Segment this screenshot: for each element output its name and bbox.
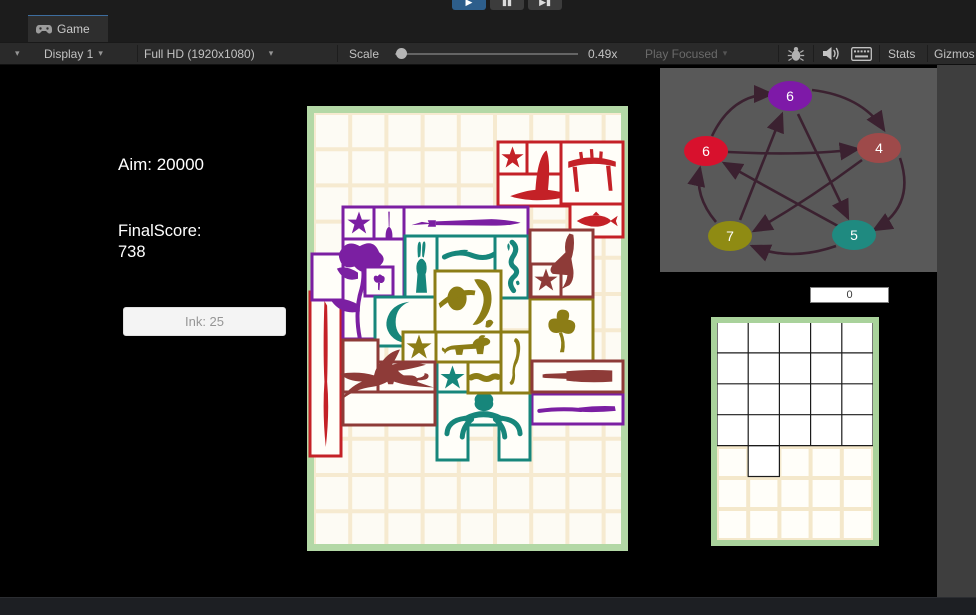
puzzle-piece[interactable] xyxy=(343,207,374,240)
bug-icon xyxy=(787,46,805,62)
graph-node-label: 6 xyxy=(786,88,794,104)
graph-node[interactable]: 6 xyxy=(684,136,728,166)
mute-audio-button[interactable] xyxy=(822,43,842,64)
puzzle-piece[interactable] xyxy=(403,332,501,362)
puzzle-piece[interactable] xyxy=(310,292,341,456)
display-selector[interactable]: Display 1▾ xyxy=(44,43,103,64)
graph-node-label: 7 xyxy=(726,228,734,244)
graph-node-label: 6 xyxy=(702,143,710,159)
graph-node[interactable]: 4 xyxy=(857,133,901,163)
scale-value: 0.49x xyxy=(588,43,617,64)
graph-edge-arrow xyxy=(712,94,772,136)
graph-node-label: 4 xyxy=(875,140,883,156)
graph-edge-arrow xyxy=(754,160,862,231)
final-score-text: FinalScore: 738 xyxy=(118,221,238,263)
scale-slider[interactable] xyxy=(395,53,578,55)
toolbar-separator xyxy=(927,45,928,62)
tab-game-label: Game xyxy=(57,22,90,36)
graph-edge-arrow xyxy=(812,90,884,130)
graph-edge-arrow xyxy=(728,149,858,153)
view-options-caret[interactable]: ▾ xyxy=(10,43,20,64)
display-selector-label: Display 1 xyxy=(44,47,93,61)
puzzle-piece[interactable] xyxy=(365,267,393,296)
resolution-selector[interactable]: Full HD (1920x1080) ▾ xyxy=(144,43,273,64)
puzzle-piece[interactable] xyxy=(530,299,593,362)
graph-edge-arrow xyxy=(752,246,836,254)
gizmos-label: Gizmos xyxy=(934,47,975,61)
graph-edge-arrow xyxy=(874,158,904,230)
editor-tab-strip: ▶ ▮▮ ▶▮ Game xyxy=(0,0,976,42)
node-graph-panel: 66475 xyxy=(660,68,937,272)
number-input[interactable] xyxy=(810,287,889,303)
toolbar-separator xyxy=(813,45,814,62)
debug-button[interactable] xyxy=(787,43,805,64)
pause-button[interactable]: ▮▮ xyxy=(490,0,524,10)
puzzle-piece[interactable] xyxy=(561,142,623,204)
node-graph: 66475 xyxy=(660,68,937,272)
puzzle-piece[interactable] xyxy=(468,362,501,393)
aim-score-text: Aim: 20000 xyxy=(118,155,204,175)
puzzle-piece[interactable] xyxy=(437,362,468,393)
speaker-icon xyxy=(822,46,842,61)
play-focused-selector[interactable]: Play Focused ▾ xyxy=(645,43,727,64)
keyboard-icon xyxy=(851,47,872,61)
puzzle-piece[interactable] xyxy=(532,394,623,424)
puzzle-piece[interactable] xyxy=(405,236,437,298)
graph-edge-arrow xyxy=(798,114,848,218)
ink-button[interactable]: Ink: 25 xyxy=(123,307,286,336)
play-button[interactable]: ▶ xyxy=(452,0,486,10)
puzzle-piece[interactable] xyxy=(501,332,530,393)
graph-edge-arrow xyxy=(740,114,782,220)
game-view-toolbar: ▾ Display 1▾ Full HD (1920x1080) ▾ Scale… xyxy=(0,42,976,65)
resolution-selector-label: Full HD (1920x1080) xyxy=(144,47,255,61)
scale-slider-knob[interactable] xyxy=(396,48,407,59)
graph-node-label: 5 xyxy=(850,227,858,243)
graph-node[interactable]: 5 xyxy=(832,220,876,250)
play-focused-label: Play Focused xyxy=(645,47,718,61)
toolbar-separator xyxy=(137,45,138,62)
graph-edge-arrow xyxy=(699,168,716,222)
step-button[interactable]: ▶▮ xyxy=(528,0,562,10)
graph-node[interactable]: 7 xyxy=(708,221,752,251)
stats-button[interactable]: Stats xyxy=(888,43,915,64)
puzzle-piece[interactable] xyxy=(530,230,593,297)
toolbar-separator xyxy=(337,45,338,62)
play-controls: ▶ ▮▮ ▶▮ xyxy=(452,0,562,10)
main-puzzle-board[interactable] xyxy=(307,106,628,551)
toolbar-separator xyxy=(879,45,880,62)
tab-game[interactable]: Game xyxy=(28,15,108,42)
puzzle-piece[interactable] xyxy=(435,271,501,332)
final-score-value: 738 xyxy=(118,243,146,261)
editor-background-strip xyxy=(937,65,976,597)
toolbar-separator xyxy=(778,45,779,62)
snake-glyph xyxy=(471,376,498,379)
graph-node[interactable]: 6 xyxy=(768,81,812,111)
game-controller-icon xyxy=(36,24,52,35)
tracking-grid-board[interactable] xyxy=(711,317,879,546)
final-score-label: FinalScore: xyxy=(118,222,201,240)
device-simulator-button[interactable] xyxy=(851,43,872,64)
puzzle-piece[interactable] xyxy=(532,361,623,392)
scale-label: Scale xyxy=(349,43,379,64)
window-bottom-bar xyxy=(0,597,976,615)
gizmos-button[interactable]: Gizmos ▾ xyxy=(934,43,976,64)
